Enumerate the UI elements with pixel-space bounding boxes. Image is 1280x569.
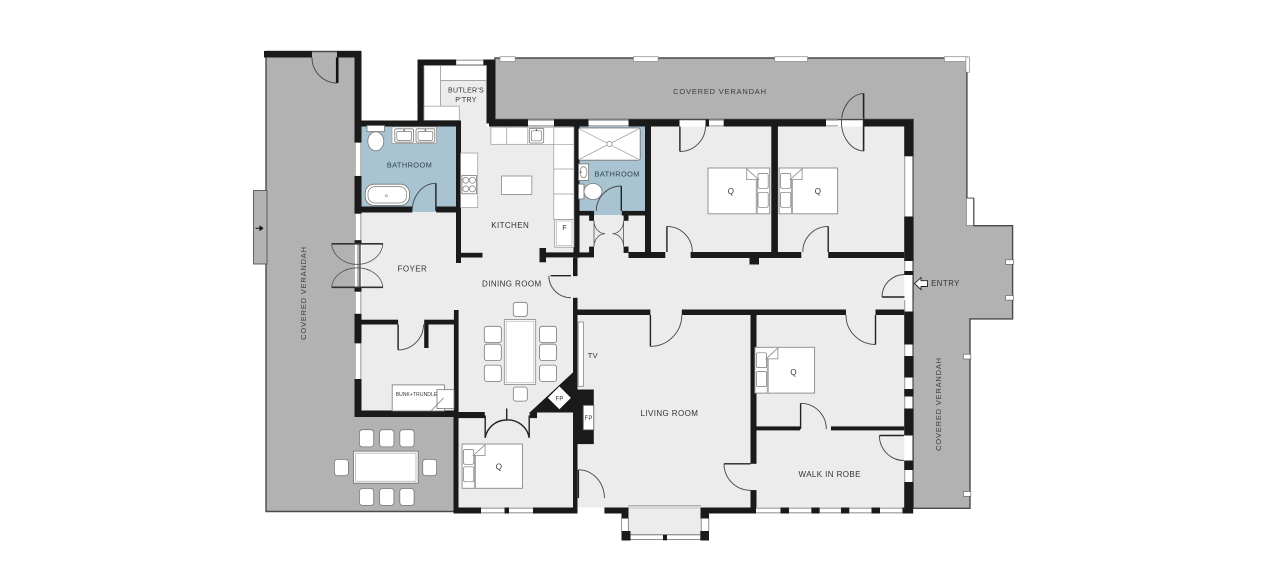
svg-text:DINING ROOM: DINING ROOM bbox=[482, 280, 542, 289]
svg-text:KITCHEN: KITCHEN bbox=[491, 221, 529, 230]
svg-text:COVERED VERANDAH: COVERED VERANDAH bbox=[673, 87, 767, 96]
svg-text:BUTLER'S: BUTLER'S bbox=[448, 88, 484, 95]
svg-text:TV: TV bbox=[588, 351, 598, 360]
svg-text:COVERED VERANDAH: COVERED VERANDAH bbox=[299, 246, 308, 340]
svg-text:ENTRY: ENTRY bbox=[931, 279, 960, 288]
svg-text:Q: Q bbox=[790, 368, 796, 377]
svg-text:FP: FP bbox=[555, 397, 563, 403]
svg-text:FOYER: FOYER bbox=[398, 265, 428, 274]
svg-text:FP: FP bbox=[585, 416, 593, 422]
svg-text:BUNK+TRUNDLE: BUNK+TRUNDLE bbox=[396, 392, 438, 398]
svg-text:LIVING ROOM: LIVING ROOM bbox=[641, 409, 699, 418]
svg-text:F: F bbox=[562, 223, 567, 232]
svg-text:P'TRY: P'TRY bbox=[455, 97, 476, 104]
svg-text:Q: Q bbox=[728, 187, 734, 196]
svg-text:COVERED VERANDAH: COVERED VERANDAH bbox=[934, 357, 943, 451]
svg-text:Q: Q bbox=[815, 187, 821, 196]
svg-text:BATHROOM: BATHROOM bbox=[595, 170, 640, 179]
svg-text:BATHROOM: BATHROOM bbox=[387, 161, 432, 170]
svg-text:Q: Q bbox=[496, 463, 502, 472]
svg-text:WALK IN ROBE: WALK IN ROBE bbox=[799, 470, 861, 479]
